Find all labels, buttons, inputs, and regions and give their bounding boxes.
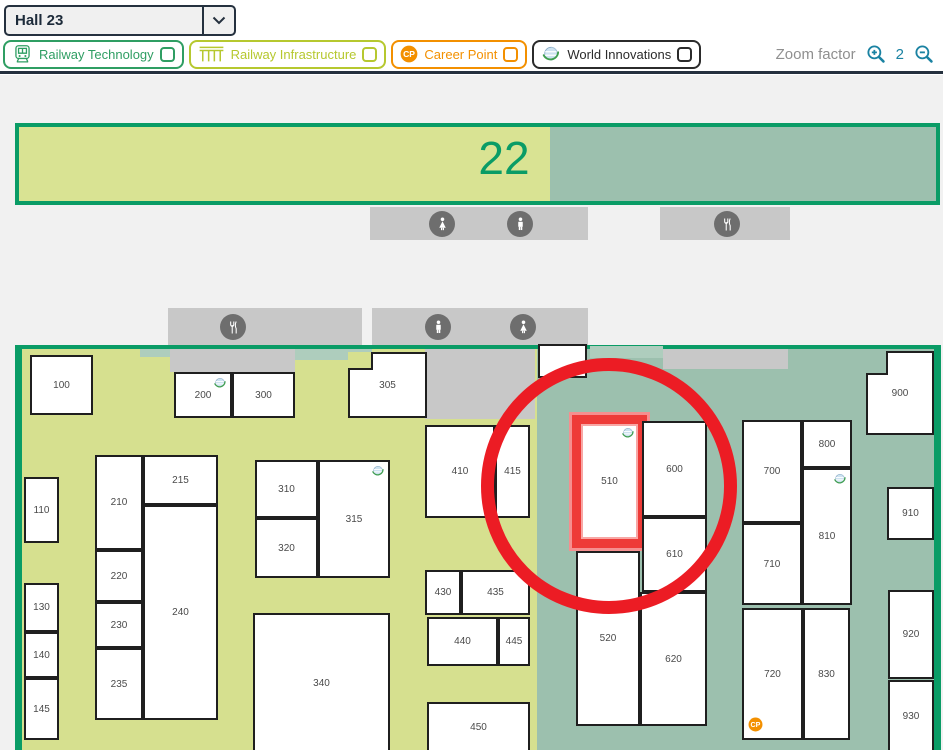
legend-checkbox[interactable] bbox=[362, 47, 377, 62]
booth-100[interactable]: 100 bbox=[30, 355, 93, 415]
booth-label: 445 bbox=[506, 636, 523, 647]
booth-label: 450 bbox=[470, 722, 487, 733]
booth-label: 920 bbox=[903, 629, 920, 640]
booth-145[interactable]: 145 bbox=[24, 678, 59, 740]
booth-110[interactable]: 110 bbox=[24, 477, 59, 543]
booth-810[interactable]: 810 bbox=[802, 468, 852, 605]
zoom-factor-label: Zoom factor bbox=[776, 46, 856, 63]
booth-440[interactable]: 440 bbox=[427, 617, 498, 666]
zoom-factor-control: Zoom factor 2 bbox=[776, 44, 940, 64]
svg-text:CP: CP bbox=[403, 49, 415, 59]
legend-checkbox[interactable] bbox=[503, 47, 518, 62]
booth-label: 700 bbox=[764, 466, 781, 477]
booth-315[interactable]: 315 bbox=[318, 460, 390, 578]
booth-label: 300 bbox=[255, 390, 272, 401]
divider bbox=[0, 71, 943, 74]
booth-label: 200 bbox=[195, 390, 212, 401]
world-innovations-globe-icon bbox=[833, 472, 847, 486]
booth-corner-notch bbox=[348, 352, 373, 370]
booth-200[interactable]: 200 bbox=[174, 372, 232, 418]
service-strip bbox=[168, 308, 362, 345]
booth-label: 140 bbox=[33, 650, 50, 661]
booth-215[interactable]: 215 bbox=[143, 455, 218, 505]
booth-label: 910 bbox=[902, 508, 919, 519]
booth-620[interactable]: 620 bbox=[640, 592, 707, 726]
legend-item-label: Railway Technology bbox=[39, 47, 154, 62]
legend-item-railway-infrastructure[interactable]: Railway Infrastructure bbox=[189, 40, 387, 69]
booth-920[interactable]: 920 bbox=[888, 590, 934, 679]
booth-410[interactable]: 410 bbox=[425, 425, 495, 518]
booth-label: 145 bbox=[33, 704, 50, 715]
booth-610[interactable]: 610 bbox=[642, 517, 707, 592]
booth-label: 210 bbox=[111, 497, 128, 508]
booth-520[interactable]: 520 bbox=[576, 551, 640, 726]
restaurant-icon bbox=[220, 314, 246, 340]
booth-910[interactable]: 910 bbox=[887, 487, 934, 540]
booth-710[interactable]: 710 bbox=[742, 523, 802, 605]
globe-icon bbox=[541, 44, 561, 64]
chevron-down-icon[interactable] bbox=[202, 7, 234, 34]
service-strip bbox=[663, 349, 788, 369]
svg-text:CP: CP bbox=[751, 721, 761, 729]
career-point-icon: CP bbox=[400, 45, 418, 63]
booth-900[interactable]: 900 bbox=[866, 351, 934, 435]
booth-720[interactable]: 720 CP bbox=[742, 608, 803, 740]
booth-210[interactable]: 210 bbox=[95, 455, 143, 550]
restroom-woman-icon bbox=[510, 314, 536, 340]
hall-22-label: 22 bbox=[444, 131, 564, 185]
booth-label: 510 bbox=[601, 476, 618, 487]
booth-label: 810 bbox=[819, 531, 836, 542]
booth-label: 720 bbox=[764, 669, 781, 680]
booth-label: 710 bbox=[764, 559, 781, 570]
legend-checkbox[interactable] bbox=[160, 47, 175, 62]
booth-label: 110 bbox=[34, 505, 50, 516]
booth-label: 930 bbox=[903, 711, 920, 722]
world-innovations-globe-icon bbox=[371, 464, 385, 478]
booth-label: 215 bbox=[172, 475, 189, 486]
booth-label: 415 bbox=[504, 466, 521, 477]
legend-item-label: World Innovations bbox=[567, 47, 671, 62]
booth-320[interactable]: 320 bbox=[255, 518, 318, 578]
booth-140[interactable]: 140 bbox=[24, 632, 59, 678]
legend-checkbox[interactable] bbox=[677, 47, 692, 62]
legend-item-career-point[interactable]: CPCareer Point bbox=[391, 40, 527, 69]
restroom-man-icon bbox=[425, 314, 451, 340]
booth-label: 800 bbox=[819, 439, 836, 450]
booth-305[interactable]: 305 bbox=[348, 352, 427, 418]
zoom-in-icon[interactable] bbox=[866, 44, 886, 64]
booth-label: 130 bbox=[33, 602, 50, 613]
booth-510[interactable]: 510 bbox=[572, 415, 647, 548]
booth-435[interactable]: 435 bbox=[461, 570, 530, 615]
restroom-man-icon bbox=[507, 211, 533, 237]
hall-23-wall-right bbox=[934, 345, 941, 750]
world-innovations-globe-icon bbox=[213, 376, 227, 390]
hall-select-dropdown[interactable]: Hall 23 bbox=[4, 5, 236, 36]
zoom-factor-value: 2 bbox=[896, 46, 904, 63]
booth-label: 620 bbox=[665, 654, 682, 665]
world-innovations-globe-icon bbox=[621, 426, 635, 440]
booth-415[interactable]: 415 bbox=[495, 425, 530, 518]
booth-label: 435 bbox=[487, 587, 504, 598]
hall-22-block[interactable]: 22 bbox=[15, 123, 940, 205]
booth-310[interactable]: 310 bbox=[255, 460, 318, 518]
booth-930[interactable]: 930 bbox=[888, 680, 934, 750]
booth-label: 310 bbox=[278, 484, 295, 495]
hall-map-app: 100200 300305110130140145210215220230235… bbox=[0, 0, 943, 750]
booth[interactable] bbox=[538, 344, 587, 378]
hall-23-wall-left bbox=[15, 345, 22, 750]
service-strip bbox=[425, 349, 535, 419]
booth-label: 230 bbox=[111, 620, 128, 631]
booth-340[interactable]: 340 bbox=[253, 613, 390, 750]
booth-220[interactable]: 220 bbox=[95, 550, 143, 602]
booth-label: 900 bbox=[892, 388, 909, 399]
booth-235[interactable]: 235 bbox=[95, 648, 143, 720]
career-point-icon: CP bbox=[748, 717, 763, 732]
service-strip bbox=[372, 308, 588, 345]
booth-label: 320 bbox=[278, 543, 295, 554]
booth-label: 220 bbox=[111, 571, 128, 582]
booth-label: 830 bbox=[818, 669, 835, 680]
booth-label: 235 bbox=[111, 679, 128, 690]
booth-label: 520 bbox=[600, 633, 617, 644]
booth-130[interactable]: 130 bbox=[24, 583, 59, 632]
bridge-icon bbox=[198, 45, 225, 64]
legend-item-label: Railway Infrastructure bbox=[231, 47, 357, 62]
booth-label: 410 bbox=[452, 466, 469, 477]
restroom-woman-icon bbox=[429, 211, 455, 237]
zoom-out-icon[interactable] bbox=[914, 44, 934, 64]
booth-600[interactable]: 600 bbox=[642, 421, 707, 517]
legend-item-railway-technology[interactable]: Railway Technology bbox=[3, 40, 184, 69]
booth-label: 305 bbox=[379, 380, 396, 391]
booth-300[interactable]: 300 bbox=[232, 372, 295, 418]
booth-label: 240 bbox=[172, 607, 189, 618]
booth-label: 610 bbox=[666, 549, 683, 560]
booth-430[interactable]: 430 bbox=[425, 570, 461, 615]
booth-label: 100 bbox=[53, 380, 70, 391]
booth-830[interactable]: 830 bbox=[803, 608, 850, 740]
wall-teal-patch bbox=[140, 349, 170, 357]
booth-800[interactable]: 800 bbox=[802, 420, 852, 468]
booth-450[interactable]: 450 bbox=[427, 702, 530, 750]
train-icon bbox=[12, 44, 33, 65]
hall-select-value: Hall 23 bbox=[6, 12, 202, 29]
booth-label: 315 bbox=[346, 514, 363, 525]
booth-240[interactable]: 240 bbox=[143, 505, 218, 720]
wall-teal-patch bbox=[590, 346, 663, 358]
hall-22-teal-section bbox=[550, 127, 936, 201]
booth-230[interactable]: 230 bbox=[95, 602, 143, 648]
booth-label: 340 bbox=[313, 678, 330, 689]
legend-item-world-innovations[interactable]: World Innovations bbox=[532, 40, 701, 69]
booth-445[interactable]: 445 bbox=[498, 617, 530, 666]
booth-label: 600 bbox=[666, 464, 683, 475]
booth-corner-notch bbox=[866, 351, 888, 375]
legend-item-label: Career Point bbox=[424, 47, 497, 62]
service-strip bbox=[370, 207, 588, 240]
legend-row: Railway Technology Railway Infrastructur… bbox=[3, 39, 940, 69]
booth-700[interactable]: 700 bbox=[742, 420, 802, 523]
booth-label: 430 bbox=[435, 587, 452, 598]
restaurant-icon bbox=[714, 211, 740, 237]
booth-label: 440 bbox=[454, 636, 471, 647]
service-strip bbox=[170, 349, 295, 372]
